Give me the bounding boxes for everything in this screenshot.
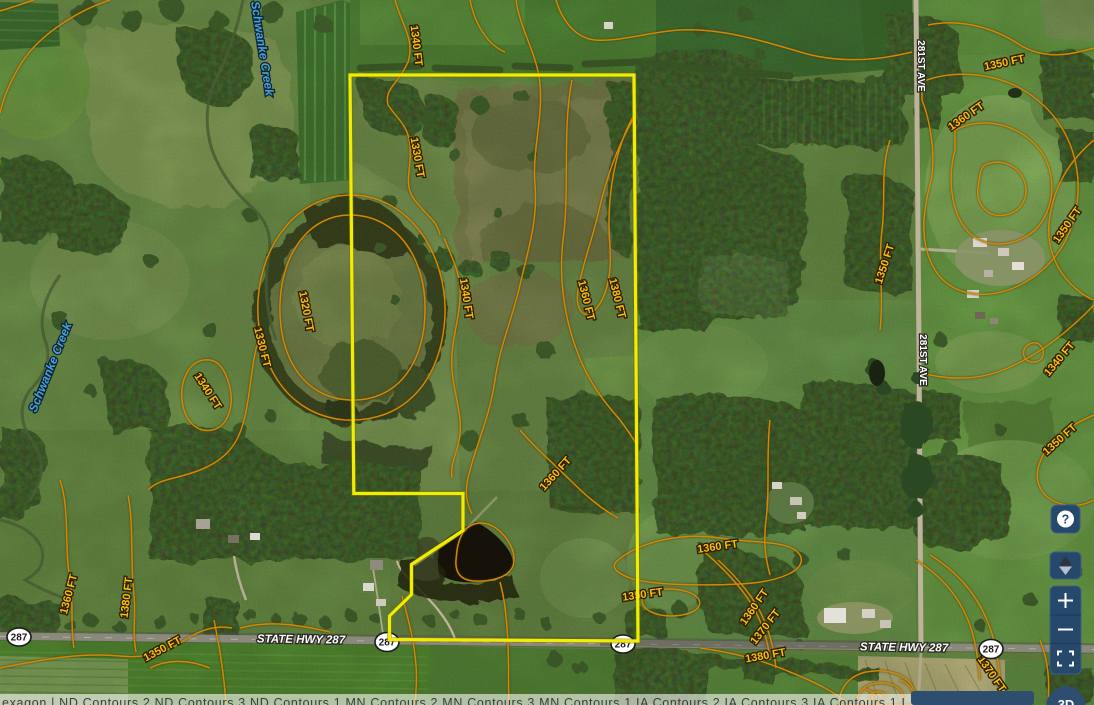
svg-text:exagon | ND Contours 2 ND C: exagon | ND Contours 2 ND Contours 3 ND …: [2, 696, 905, 705]
svg-text:281ST AVE: 281ST AVE: [917, 334, 928, 386]
svg-text:287: 287: [983, 645, 1000, 656]
svg-text:?: ?: [1062, 513, 1070, 527]
svg-text:287: 287: [11, 633, 28, 644]
svg-text:STATE HWY 287: STATE HWY 287: [257, 633, 346, 646]
svg-text:281ST AVE: 281ST AVE: [915, 40, 926, 92]
svg-text:STATE HWY 287: STATE HWY 287: [860, 641, 949, 654]
svg-text:3D: 3D: [1058, 697, 1075, 705]
